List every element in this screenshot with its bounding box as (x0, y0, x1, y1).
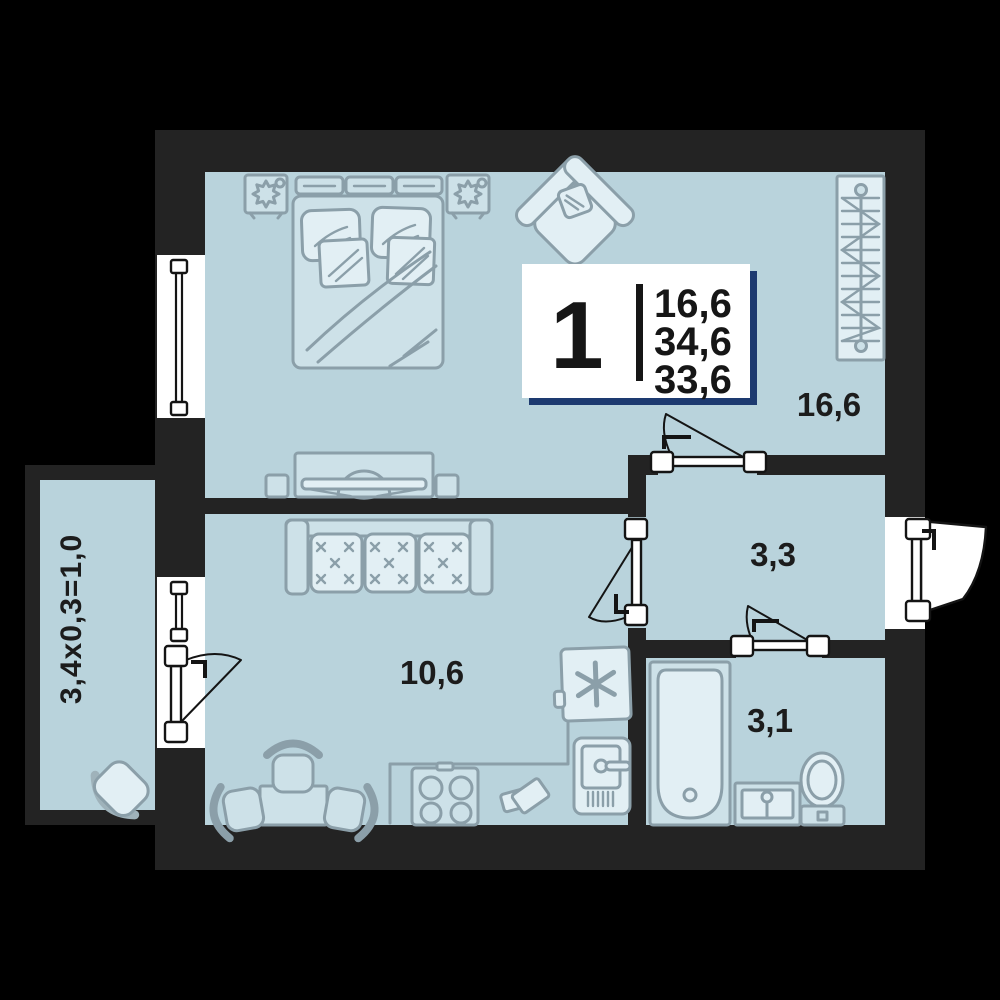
label-bathroom-area: 3,1 (747, 702, 793, 739)
wall-bedroom-kitchen (157, 498, 646, 514)
sink (735, 783, 800, 825)
floor-plan: 16,6 3,3 10,6 3,1 3,4x0,3=1,0 1 16,6 34,… (0, 0, 1000, 1000)
card-divider (636, 284, 643, 381)
washing-machine (574, 738, 630, 814)
floor-plan-canvas: 16,6 3,3 10,6 3,1 3,4x0,3=1,0 1 16,6 34,… (0, 0, 1000, 1000)
toilet (801, 753, 844, 825)
balcony (25, 465, 155, 825)
stove (412, 763, 478, 825)
bed-cushion-left (319, 239, 369, 287)
label-kitchen-area: 10,6 (400, 654, 464, 691)
wall-hall-left-upper (628, 455, 646, 517)
bathtub (650, 662, 730, 825)
tv-stand (295, 453, 433, 499)
sofa (286, 520, 492, 594)
fridge (553, 647, 631, 722)
window-living (157, 255, 205, 418)
wall-hall-top-right (757, 455, 885, 475)
label-living-area: 16,6 (797, 386, 861, 423)
radiator (837, 176, 884, 360)
label-balcony-area: 3,4x0,3=1,0 (55, 534, 88, 704)
double-bed (293, 177, 443, 368)
label-hall-area: 3,3 (750, 536, 796, 573)
nightstand-right (447, 175, 489, 218)
nightstand-left (245, 175, 287, 218)
area-line-3: 33,6 (654, 358, 732, 402)
wall-bathroom-top-left (646, 640, 736, 658)
rooms-count: 1 (550, 282, 603, 389)
stool-left (266, 475, 288, 497)
unit-info-card: 1 16,6 34,6 33,6 (522, 264, 757, 405)
wall-bathroom-top-right (822, 640, 885, 658)
stool-right (436, 475, 458, 497)
window-kitchen (157, 577, 205, 645)
